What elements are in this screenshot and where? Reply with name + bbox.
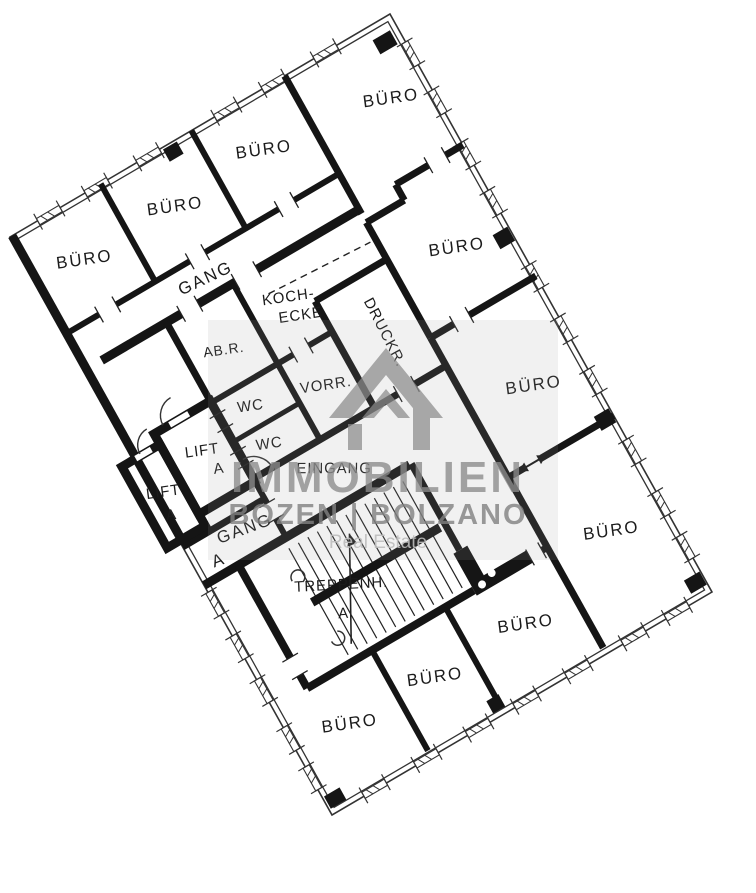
room-label-lift-left-sub: A [165, 506, 178, 525]
room-label-buero-10: BÜRO [320, 710, 379, 737]
room-label-buero-8: BÜRO [496, 610, 555, 637]
room-label-buero-9: BÜRO [406, 663, 465, 690]
watermark: IMMOBILIEN BOZEN | BOLZANO Real Estate [208, 320, 558, 560]
watermark-city: BOZEN | BOLZANO [228, 499, 527, 531]
room-label-buero-7: BÜRO [582, 517, 641, 544]
room-label-buero-3: BÜRO [234, 136, 293, 163]
room-label-buero-4: BÜRO [362, 84, 421, 111]
room-label-buero-1: BÜRO [55, 246, 114, 273]
watermark-tagline: Real Estate [329, 532, 427, 553]
room-label-treppenhaus: TREPPENH. [294, 574, 389, 596]
room-label-lift-left: LIFT [145, 481, 181, 503]
stair-start-mark [329, 629, 348, 648]
room-label-buero-2: BÜRO [146, 193, 205, 220]
room-label-buero-5: BÜRO [428, 233, 487, 260]
floor-plan: BÜRO BÜRO BÜRO BÜRO BÜRO BÜRO BÜRO BÜRO … [0, 0, 756, 888]
room-label-treppenhaus-sub: A [338, 605, 350, 623]
watermark-brand: IMMOBILIEN [231, 453, 525, 502]
